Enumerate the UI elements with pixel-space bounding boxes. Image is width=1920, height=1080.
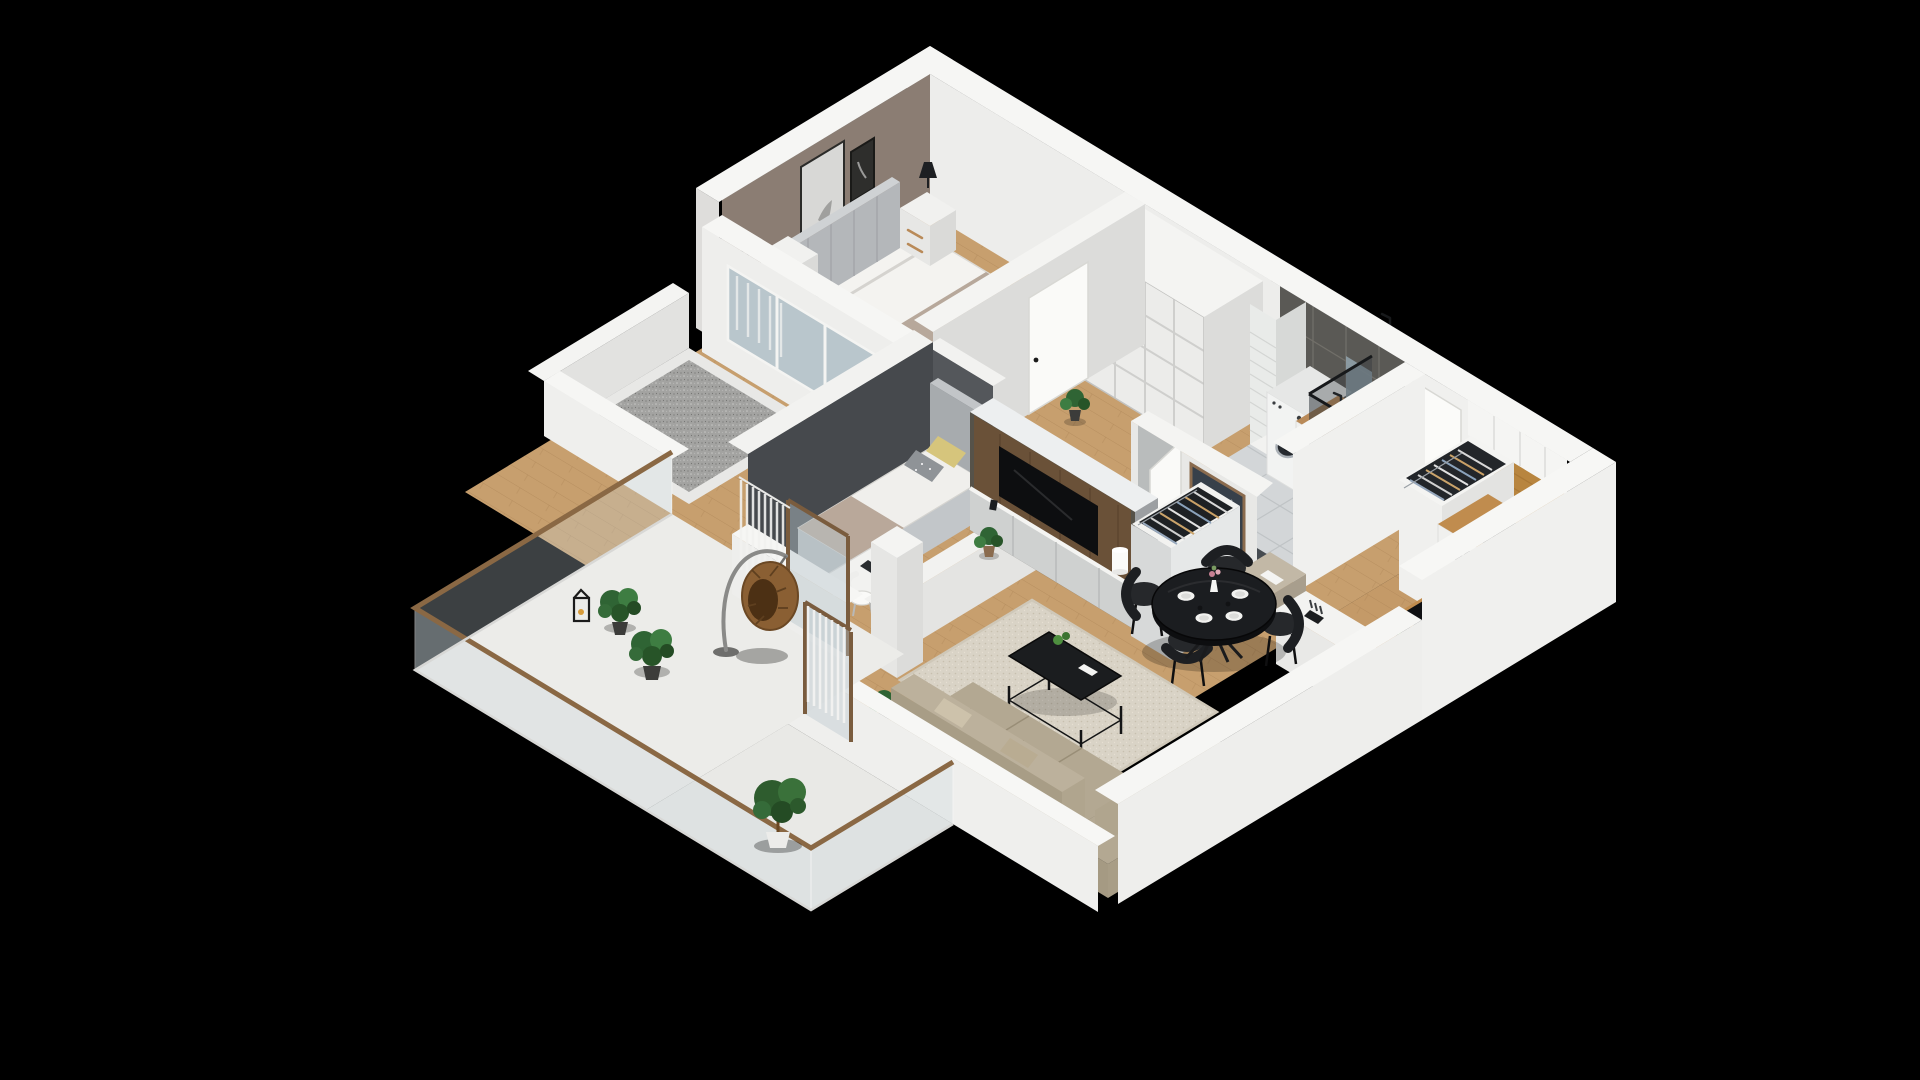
door-handle-icon: [1034, 358, 1039, 363]
floorplan-render: 3D isometric cutaway floor plan render o…: [0, 0, 1920, 1080]
balcony-plant-a: [598, 588, 641, 635]
render-stage: 3D isometric cutaway floor plan render o…: [0, 0, 1920, 1080]
white-planter: [766, 832, 790, 848]
basket-opening: [748, 579, 778, 621]
drum-lamp: [1112, 547, 1128, 575]
balcony-plant-b: [629, 629, 674, 680]
